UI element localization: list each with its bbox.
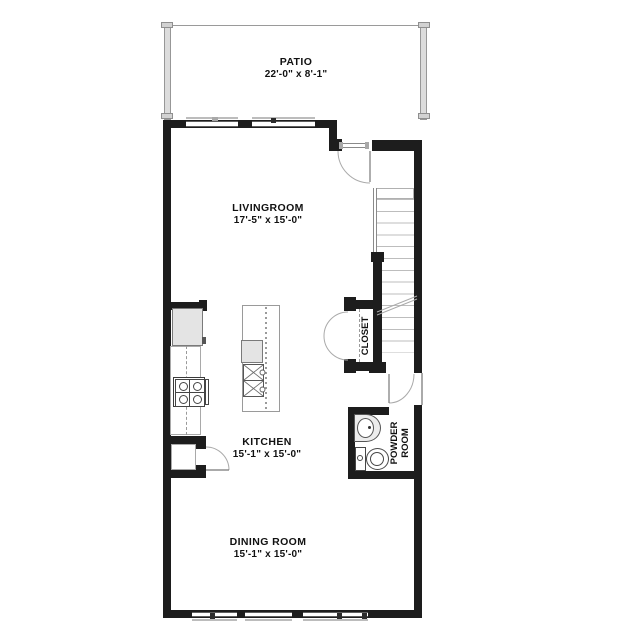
stair-wall-flare-top xyxy=(371,252,384,262)
burner xyxy=(189,392,205,407)
burner-dot xyxy=(179,395,188,404)
patio-wall-left xyxy=(164,25,171,120)
exterior-wall-right-lower xyxy=(414,405,422,618)
closet-door-arc-lower xyxy=(324,336,348,360)
burner-dot xyxy=(193,382,202,391)
right-opening-edge xyxy=(421,373,423,405)
patio-post xyxy=(161,113,173,119)
exterior-wall-right-upper xyxy=(414,140,422,373)
patio-post xyxy=(418,113,430,119)
patio-label: PATIO xyxy=(196,56,396,68)
window-sill xyxy=(192,619,237,621)
livingroom-dims: 17'-5" x 15'-0" xyxy=(168,215,368,226)
closet-wall-top-flare xyxy=(344,297,356,311)
patio-top-edge xyxy=(171,25,420,26)
patio-dims: 22'-0" x 8'-1" xyxy=(196,69,396,80)
entry-door-arc xyxy=(338,151,370,183)
window xyxy=(186,121,238,127)
powder-room-label-line1: POWDER xyxy=(389,408,400,478)
closet-label: CLOSET xyxy=(360,306,372,366)
window-sill xyxy=(252,117,315,119)
closet-door-arc-upper xyxy=(324,312,348,336)
stair-rail xyxy=(373,188,377,252)
hall-door-arc xyxy=(389,374,414,403)
floor-plan: PATIO 22'-0" x 8'-1" LIVINGROOM 17'-5" x… xyxy=(0,0,639,639)
patio-post xyxy=(161,22,173,28)
range-handle xyxy=(205,379,209,405)
stair-wall xyxy=(373,252,382,373)
entry-threshold-cap xyxy=(365,142,369,149)
range xyxy=(173,377,205,407)
diningroom-label: DINING ROOM xyxy=(168,536,368,548)
burner-dot xyxy=(179,382,188,391)
window-mullion-tick xyxy=(210,613,215,619)
window-sill xyxy=(245,619,292,621)
window-mullion-tick xyxy=(362,613,367,619)
powder-room-label: POWDER ROOM xyxy=(389,408,413,478)
kitchen-dims: 15'-1" x 15'-0" xyxy=(167,449,367,460)
powder-faucet-dot xyxy=(368,426,371,429)
entry-threshold xyxy=(341,143,368,148)
window xyxy=(303,612,368,617)
stair-treads xyxy=(377,199,414,353)
window xyxy=(245,612,292,617)
side-door-block-lower xyxy=(196,465,206,478)
entry-threshold-cap xyxy=(339,142,343,149)
side-door-stub-lower xyxy=(163,470,199,478)
island-sink-divider xyxy=(243,380,264,381)
refrigerator xyxy=(172,308,203,346)
toilet-bowl-inner xyxy=(370,452,384,466)
burner-dot xyxy=(193,395,202,404)
stair-landing xyxy=(375,188,414,199)
patio-post xyxy=(418,22,430,28)
window xyxy=(252,121,315,127)
closet-wall-bottom-flare xyxy=(344,359,356,373)
livingroom-label: LIVINGROOM xyxy=(168,202,368,214)
window-mullion-tick xyxy=(212,117,218,121)
powder-room-label-line2: ROOM xyxy=(400,408,411,478)
island-overhang-dotted-line xyxy=(265,307,267,410)
window-mullion-tick xyxy=(337,613,342,619)
dishwasher xyxy=(241,340,263,363)
powder-sink-basin xyxy=(357,418,374,438)
patio-wall-right xyxy=(420,25,427,120)
kitchen-label: KITCHEN xyxy=(167,436,367,448)
window-sill xyxy=(303,619,368,621)
diningroom-dims: 15'-1" x 15'-0" xyxy=(168,549,368,560)
refrigerator-handle xyxy=(202,337,206,344)
window-mullion-tick xyxy=(271,118,276,123)
